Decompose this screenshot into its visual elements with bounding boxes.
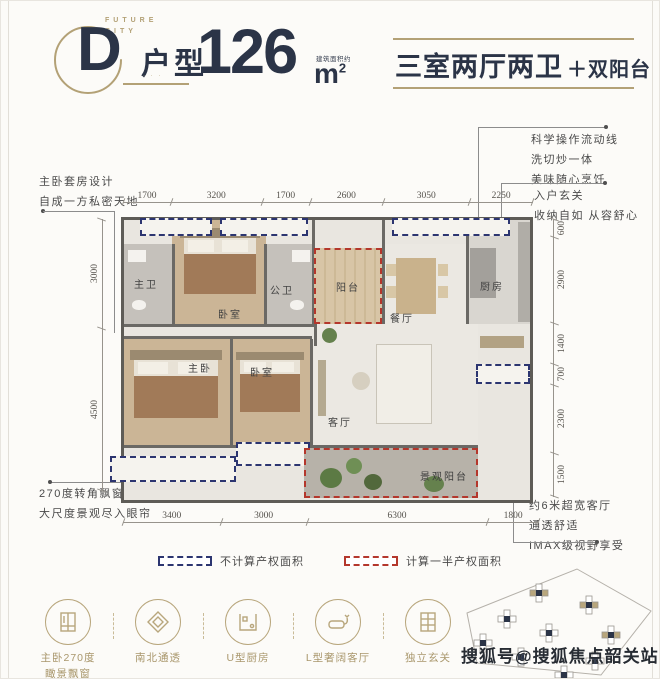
feature-l-living: L型奢阔客厅 — [299, 599, 377, 667]
wall — [230, 339, 233, 445]
feature-label-line: L型奢阔客厅 — [299, 651, 377, 667]
bed-headboard — [236, 352, 304, 360]
dim-seg: 3050 — [383, 187, 469, 203]
bed-blanket — [240, 374, 300, 412]
dim-seg: 3200 — [171, 187, 261, 203]
dim-value: 1400 — [557, 334, 567, 353]
dim-value: 3050 — [417, 191, 436, 202]
dim-seg: 2300 — [553, 385, 569, 453]
callout-dot — [604, 125, 608, 129]
legend-swatch-blue — [158, 556, 212, 566]
room-label: 卧室 — [218, 306, 242, 321]
area-unit: m2 — [314, 58, 346, 90]
dim-value: 1800 — [504, 511, 523, 522]
floorplan: 阳台 景观阳台 — [121, 217, 533, 503]
dim-value: 3000 — [90, 264, 100, 283]
dim-value: 600 — [557, 221, 567, 235]
feature-north-south: 南北通透 — [119, 599, 197, 667]
dining-table — [396, 258, 436, 314]
dim-col-left: 3000 4500 — [87, 219, 103, 491]
feature-separator — [383, 613, 384, 639]
callout-line: 科学操作流动线 — [531, 131, 619, 151]
wall — [172, 244, 175, 324]
bed-blanket — [184, 254, 256, 294]
room-label: 主卧 — [188, 360, 212, 375]
bed-headboard — [130, 350, 222, 360]
summary-main: 三室两厅两卫 — [395, 45, 563, 84]
bay-window — [220, 218, 308, 236]
callout-line: 通透舒适 — [529, 517, 624, 537]
pillow — [188, 240, 214, 252]
chair — [438, 264, 448, 276]
callout-entry: 入户玄关 收纳自如 从容舒心 — [534, 187, 639, 227]
gold-rule-bottom — [393, 87, 634, 89]
dim-seg: 700 — [553, 364, 569, 385]
dim-seg: 1800 — [487, 507, 539, 523]
unit-caption: · · · — [143, 73, 162, 79]
feature-label: 主卧270度 瞰景飘窗 — [29, 651, 107, 679]
dim-value: 4500 — [90, 400, 100, 419]
dim-seg: 4500 — [87, 328, 103, 491]
feature-bay-window: 主卧270度 瞰景飘窗 — [29, 599, 107, 679]
gold-rule-small — [123, 83, 189, 85]
toilet — [132, 300, 146, 310]
pillow — [138, 362, 168, 374]
summary-extra: ＋双阳台 — [567, 53, 651, 82]
room-label: 主卫 — [134, 276, 158, 291]
chair — [438, 286, 448, 298]
room-label: 厨房 — [480, 278, 504, 293]
feature-label-line: 瞰景飘窗 — [29, 667, 107, 679]
dim-value: 3400 — [162, 511, 181, 522]
feature-separator — [293, 613, 294, 639]
floorplan-poster: FUTURE CITY D 户型 · · · 126 建筑面积约 m2 三室两厅… — [0, 0, 660, 679]
feature-label: 南北通透 — [119, 651, 197, 667]
balcony-view: 景观阳台 — [304, 448, 478, 498]
entry-cabinet — [480, 336, 524, 348]
bath-sink — [292, 250, 310, 262]
feature-separator — [113, 613, 114, 639]
dim-seg: 2900 — [553, 237, 569, 323]
callout-wide-living: 约6米超宽客厅 通透舒适 IMAX级视野享受 — [529, 497, 624, 556]
chair — [386, 286, 396, 298]
plant-icon — [346, 458, 362, 474]
callout-line: 约6米超宽客厅 — [529, 497, 624, 517]
room-label: 餐厅 — [390, 310, 414, 325]
feature-label-line: 主卧270度 — [29, 651, 107, 667]
callout-dot — [603, 181, 607, 185]
plant-icon — [320, 468, 342, 488]
plant-icon — [364, 474, 382, 490]
room-label: 阳台 — [336, 279, 360, 294]
dim-value: 1700 — [276, 191, 295, 202]
dim-seg: 1700 — [262, 187, 310, 203]
dim-col-right: 600 2900 1400 700 2300 1500 — [553, 219, 569, 497]
dim-value: 2250 — [492, 191, 511, 202]
callout-line-seg — [114, 211, 115, 333]
coffee-table — [352, 372, 370, 390]
cabinet-icon — [405, 599, 451, 645]
dim-seg: 1500 — [553, 453, 569, 497]
dim-seg: 3000 — [221, 507, 307, 523]
gold-rule-top — [393, 38, 634, 40]
dim-row-bottom: 3400 3000 6300 1800 — [123, 507, 539, 523]
dim-value: 3000 — [254, 511, 273, 522]
dim-seg: 600 — [553, 219, 569, 237]
kitchen-counter — [518, 222, 530, 322]
callout-line-seg — [501, 183, 606, 184]
callout-line-seg — [478, 127, 606, 128]
area-unit-sup: 2 — [339, 61, 346, 76]
bay-window — [236, 442, 310, 466]
bath-sink — [128, 250, 146, 262]
feature-label: L型奢阔客厅 — [299, 651, 377, 667]
area-unit-m: m — [314, 58, 339, 89]
area-number: 126 — [197, 21, 296, 84]
dim-seg: 2600 — [310, 187, 384, 203]
room-label: 卧室 — [250, 364, 274, 379]
balcony-top: 阳台 — [314, 248, 382, 324]
dim-seg: 3400 — [123, 507, 221, 523]
diamond-icon — [135, 599, 181, 645]
dim-row-top: 1700 3200 1700 2600 3050 2250 — [123, 187, 533, 203]
bed-blanket — [134, 376, 218, 418]
legend-item-excluded: 不计算产权面积 — [158, 553, 304, 569]
bay-window — [140, 218, 212, 236]
toilet — [290, 300, 304, 310]
plant-icon — [322, 328, 337, 343]
wall — [310, 339, 313, 445]
watermark: 搜狐号@搜狐焦点韶关站 — [461, 642, 659, 667]
wall — [382, 220, 385, 324]
tv-cabinet — [318, 360, 326, 416]
sofa — [376, 344, 432, 424]
feature-row: 主卧270度 瞰景飘窗 南北通透 U型厨房 — [29, 599, 467, 679]
dim-value: 1500 — [557, 465, 567, 484]
bay-window-icon — [45, 599, 91, 645]
dim-value: 2600 — [337, 191, 356, 202]
dim-value: 2900 — [557, 270, 567, 289]
unit-letter: D — [77, 19, 122, 81]
pillow — [272, 362, 294, 372]
wall — [314, 324, 317, 346]
callout-dot — [595, 540, 599, 544]
wall — [124, 336, 312, 339]
callout-line: 入户玄关 — [534, 187, 639, 207]
callout-line: 洗切炒一体 — [531, 151, 619, 171]
feature-label: U型厨房 — [209, 651, 287, 667]
page-edge-left — [8, 1, 9, 678]
dim-value: 6300 — [387, 511, 406, 522]
chair — [386, 264, 396, 276]
room-label: 公卫 — [270, 282, 294, 297]
dim-value: 3200 — [207, 191, 226, 202]
dim-seg: 3000 — [87, 219, 103, 328]
dim-value: 700 — [557, 367, 567, 381]
u-kitchen-icon — [225, 599, 271, 645]
bay-window — [392, 218, 510, 236]
callout-line-seg — [513, 542, 597, 543]
bay-window — [476, 364, 530, 384]
wall — [264, 244, 267, 324]
sofa-icon — [315, 599, 361, 645]
wall — [124, 324, 314, 327]
bay-window-corner — [110, 456, 236, 482]
dim-seg: 1400 — [553, 323, 569, 364]
room-label: 客厅 — [328, 414, 352, 429]
room-label: 景观阳台 — [420, 468, 468, 483]
legend-swatch-red — [344, 556, 398, 566]
layout-summary: 三室两厅两卫 ＋双阳台 — [395, 45, 635, 84]
dim-seg: 2250 — [469, 187, 533, 203]
feature-u-kitchen: U型厨房 — [209, 599, 287, 667]
feature-separator — [203, 613, 204, 639]
pillow — [222, 240, 248, 252]
legend-label: 不计算产权面积 — [220, 553, 304, 569]
feature-label-line: U型厨房 — [209, 651, 287, 667]
dim-seg: 1700 — [123, 187, 171, 203]
feature-label-line: 南北通透 — [119, 651, 197, 667]
callout-line-seg — [43, 211, 115, 212]
dim-value: 2300 — [557, 409, 567, 428]
callout-dot — [48, 480, 52, 484]
dim-value: 1700 — [138, 191, 157, 202]
dim-seg: 6300 — [307, 507, 488, 523]
